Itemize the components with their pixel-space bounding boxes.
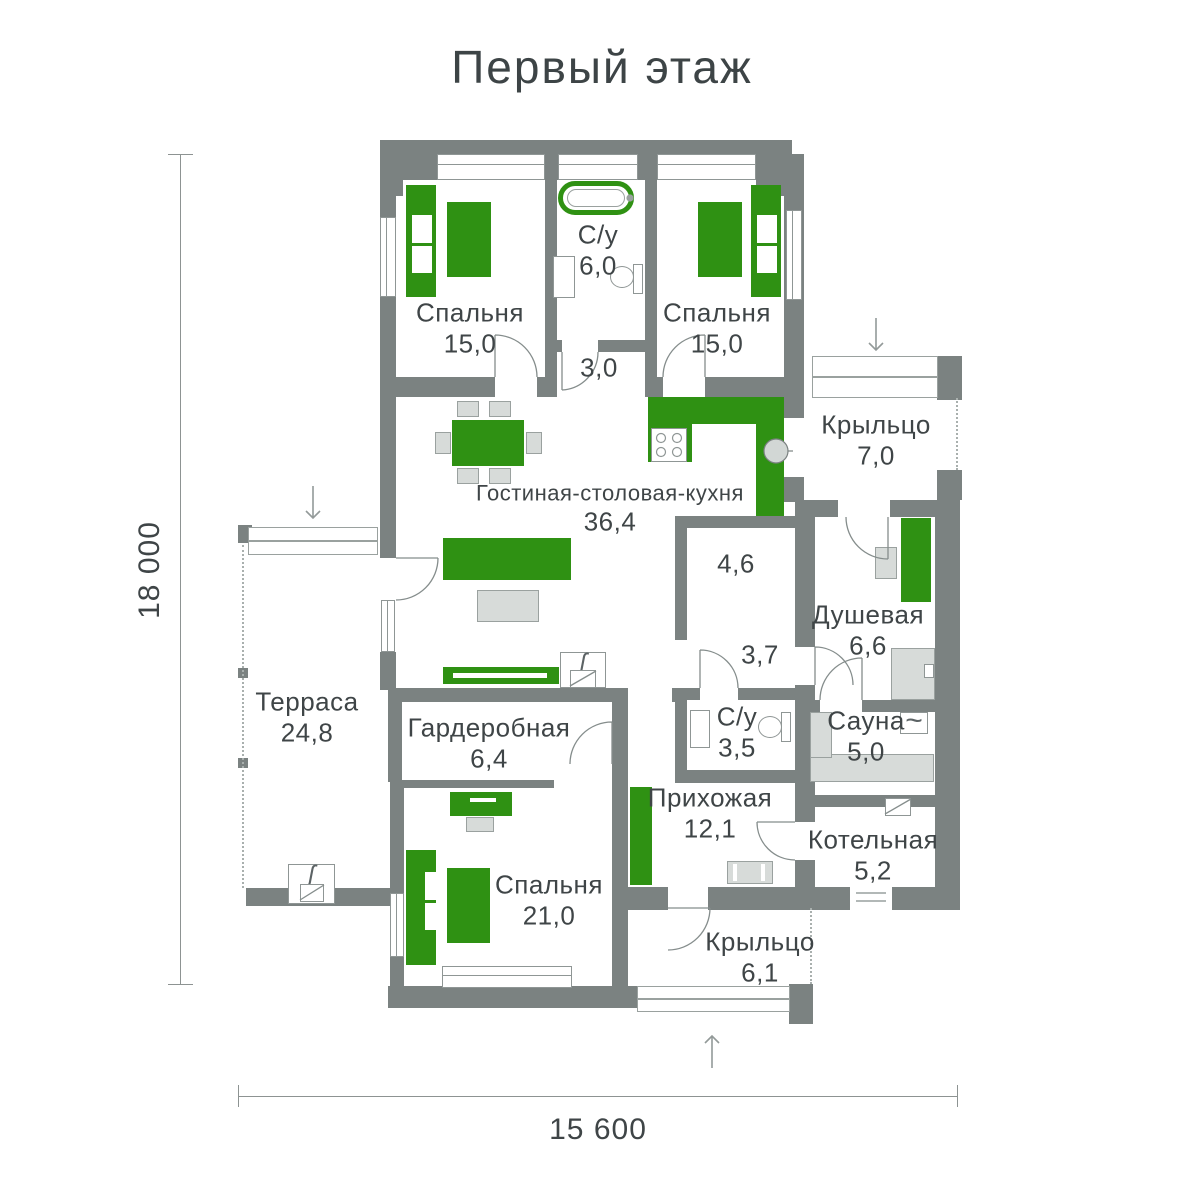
chair (435, 432, 451, 454)
wall-segment (890, 500, 937, 517)
room-label-hall-mid: 3,7 (741, 640, 779, 671)
room-name: Крыльцо (821, 409, 931, 440)
room-area: 7,0 (821, 440, 931, 471)
room-name: С/у (717, 701, 758, 732)
wall-segment (705, 377, 784, 397)
window (558, 154, 638, 180)
room-name: Терраса (255, 686, 358, 717)
room-name: Крыльцо (705, 926, 815, 957)
room-area: 12,1 (648, 813, 772, 844)
dimension-line-height (180, 155, 181, 985)
room-name: Спальня (416, 297, 524, 328)
wall-segment (892, 887, 960, 910)
bed-pillow (412, 246, 432, 273)
wall-segment (795, 700, 820, 712)
washbasin (690, 710, 710, 748)
kitchen-counter (648, 397, 784, 424)
flame-icon: ʃ (308, 865, 315, 885)
porch-steps (812, 377, 938, 398)
wall-segment (380, 400, 396, 558)
bed-blanket (698, 202, 742, 277)
room-area: 3,7 (741, 640, 779, 671)
room-label-hall-top: 3,0 (580, 353, 618, 384)
wall-segment (396, 688, 628, 702)
room-label-hallway: Прихожая 12,1 (648, 782, 772, 843)
shower-bench (901, 518, 931, 602)
arrow-down-porch-top-icon (869, 318, 883, 350)
bed-pillow (425, 903, 445, 930)
room-label-pantry: 4,6 (717, 549, 755, 580)
bathtub (558, 181, 634, 215)
room-name: Спальня (663, 297, 771, 328)
wall-segment (675, 770, 805, 783)
room-label-bedroom-left: Спальня 15,0 (416, 297, 524, 358)
bed-blanket (447, 202, 491, 277)
room-label-shower: Душевая 6,6 (812, 599, 924, 660)
furniture-detail (761, 864, 765, 881)
room-area: 6,4 (408, 743, 571, 774)
room-name: Гардеробная (408, 712, 571, 743)
window (390, 893, 404, 957)
desk (450, 792, 512, 816)
shower-door-handle (924, 664, 934, 678)
door-swing (700, 650, 738, 688)
wall-segment (795, 500, 838, 517)
door-swing (820, 658, 862, 700)
room-area: 4,6 (717, 549, 755, 580)
washbasin (553, 256, 575, 298)
arrow-up-entrance-icon (705, 1036, 719, 1068)
bed-pillow (757, 246, 777, 273)
room-area: 3,5 (717, 732, 758, 763)
porch-steps (637, 999, 790, 1012)
room-area: 21,0 (495, 900, 603, 931)
bed-pillow (757, 215, 777, 243)
wall-segment (675, 688, 687, 783)
room-label-living: Гостиная-столовая-кухня 36,4 (476, 481, 744, 538)
room-label-porch-top: Крыльцо 7,0 (821, 409, 931, 470)
room-area: 5,0 (827, 736, 905, 767)
wall-segment (545, 340, 562, 352)
dimension-tick (957, 1085, 958, 1107)
dimension-tick (238, 1085, 239, 1107)
chair (526, 432, 542, 454)
firewood-box (570, 670, 596, 688)
wall-segment (537, 377, 545, 397)
room-label-sauna: Сауна 5,0 (827, 705, 905, 766)
dotted-edge (956, 398, 958, 470)
stove (651, 428, 687, 462)
porch-steps (248, 527, 378, 541)
dimension-width-label: 15 600 (549, 1113, 647, 1147)
wall-segment (645, 154, 657, 397)
wall-segment (598, 340, 657, 352)
room-label-bathroom-small: С/у 3,5 (717, 701, 758, 762)
room-name: Спальня (495, 869, 603, 900)
boiler-vent-icon (885, 798, 911, 816)
bed-pillow (412, 215, 432, 243)
bathtub-inner (567, 189, 625, 207)
room-name: Сауна (827, 705, 905, 736)
wall-segment (937, 356, 962, 400)
dimension-line-width (238, 1096, 958, 1097)
room-label-terrace: Терраса 24,8 (255, 686, 358, 747)
room-area: 3,0 (580, 353, 618, 384)
furniture-detail (470, 798, 496, 802)
room-area: 6,0 (578, 250, 619, 281)
wall-segment (784, 477, 804, 502)
wall-segment (738, 688, 800, 700)
wall-segment (396, 780, 554, 788)
room-area: 6,1 (705, 957, 815, 988)
toilet-bowl (758, 716, 782, 738)
wall-segment (396, 377, 495, 397)
dimension-tick (168, 984, 193, 985)
room-name: Котельная (808, 824, 938, 855)
steam-wave-icon: ~ (905, 713, 923, 729)
room-label-bedroom-right: Спальня 15,0 (663, 297, 771, 358)
wall-segment (612, 688, 628, 988)
porch-steps (637, 986, 790, 999)
room-label-porch-bottom: Крыльцо 6,1 (705, 926, 815, 987)
coffee-table (477, 590, 539, 622)
arrow-down-terrace-icon (306, 486, 320, 518)
window (437, 154, 545, 180)
window (657, 154, 756, 180)
room-name: Прихожая (648, 782, 772, 813)
room-area: 5,2 (808, 855, 938, 886)
wall-segment (388, 986, 642, 1008)
wall-segment (380, 140, 792, 154)
room-name: Душевая (812, 599, 924, 630)
window (786, 210, 802, 300)
room-area: 6,6 (812, 630, 924, 661)
room-name: С/у (578, 219, 619, 250)
washer (875, 547, 897, 579)
door-swing (668, 908, 710, 950)
room-label-bathroom-top: С/у 6,0 (578, 219, 619, 280)
bed-blanket (447, 868, 490, 943)
wall-segment (657, 377, 663, 397)
room-name: Гостиная-столовая-кухня (476, 481, 744, 507)
window (380, 217, 396, 297)
grill-box (300, 884, 324, 902)
room-area: 24,8 (255, 717, 358, 748)
door-swing (396, 558, 438, 600)
room-area: 36,4 (476, 507, 744, 538)
wall-segment (403, 154, 437, 180)
room-label-bedroom-big: Спальня 21,0 (495, 869, 603, 930)
sofa (443, 538, 571, 580)
wall-segment (708, 887, 795, 910)
room-label-wardrobe: Гардеробная 6,4 (408, 712, 571, 773)
wall-segment (789, 984, 813, 1024)
desk-chair (466, 817, 494, 832)
room-label-boiler: Котельная 5,2 (808, 824, 938, 885)
boiler-exit-steps (856, 893, 886, 901)
page-title: Первый этаж (451, 40, 753, 94)
kitchen-counter (756, 424, 784, 516)
furniture-detail (453, 673, 547, 678)
porch-steps (248, 541, 378, 555)
window (442, 966, 572, 988)
floor-plan: Первый этаж 18 000 15 600 Спальня 15,0 С… (0, 0, 1198, 1200)
chair (489, 401, 511, 417)
dimension-height-label: 18 000 (133, 521, 167, 619)
toilet-tank (633, 264, 643, 294)
door-swing (570, 722, 612, 764)
wall-segment (935, 500, 960, 910)
wall-segment (388, 690, 402, 782)
wall-segment (937, 470, 962, 500)
porch-steps (812, 356, 938, 377)
toilet-tank (781, 712, 791, 742)
wall-segment (795, 887, 850, 910)
dotted-edge (242, 545, 244, 888)
room-area: 15,0 (416, 328, 524, 359)
dimension-tick (168, 154, 193, 155)
wall-segment (380, 652, 396, 690)
wall-segment (628, 887, 668, 910)
wall-segment (795, 795, 937, 807)
dining-table (452, 420, 524, 466)
window (381, 600, 395, 652)
room-area: 15,0 (663, 328, 771, 359)
furniture-detail (733, 864, 737, 881)
bed-pillow (425, 872, 445, 900)
chair (457, 401, 479, 417)
